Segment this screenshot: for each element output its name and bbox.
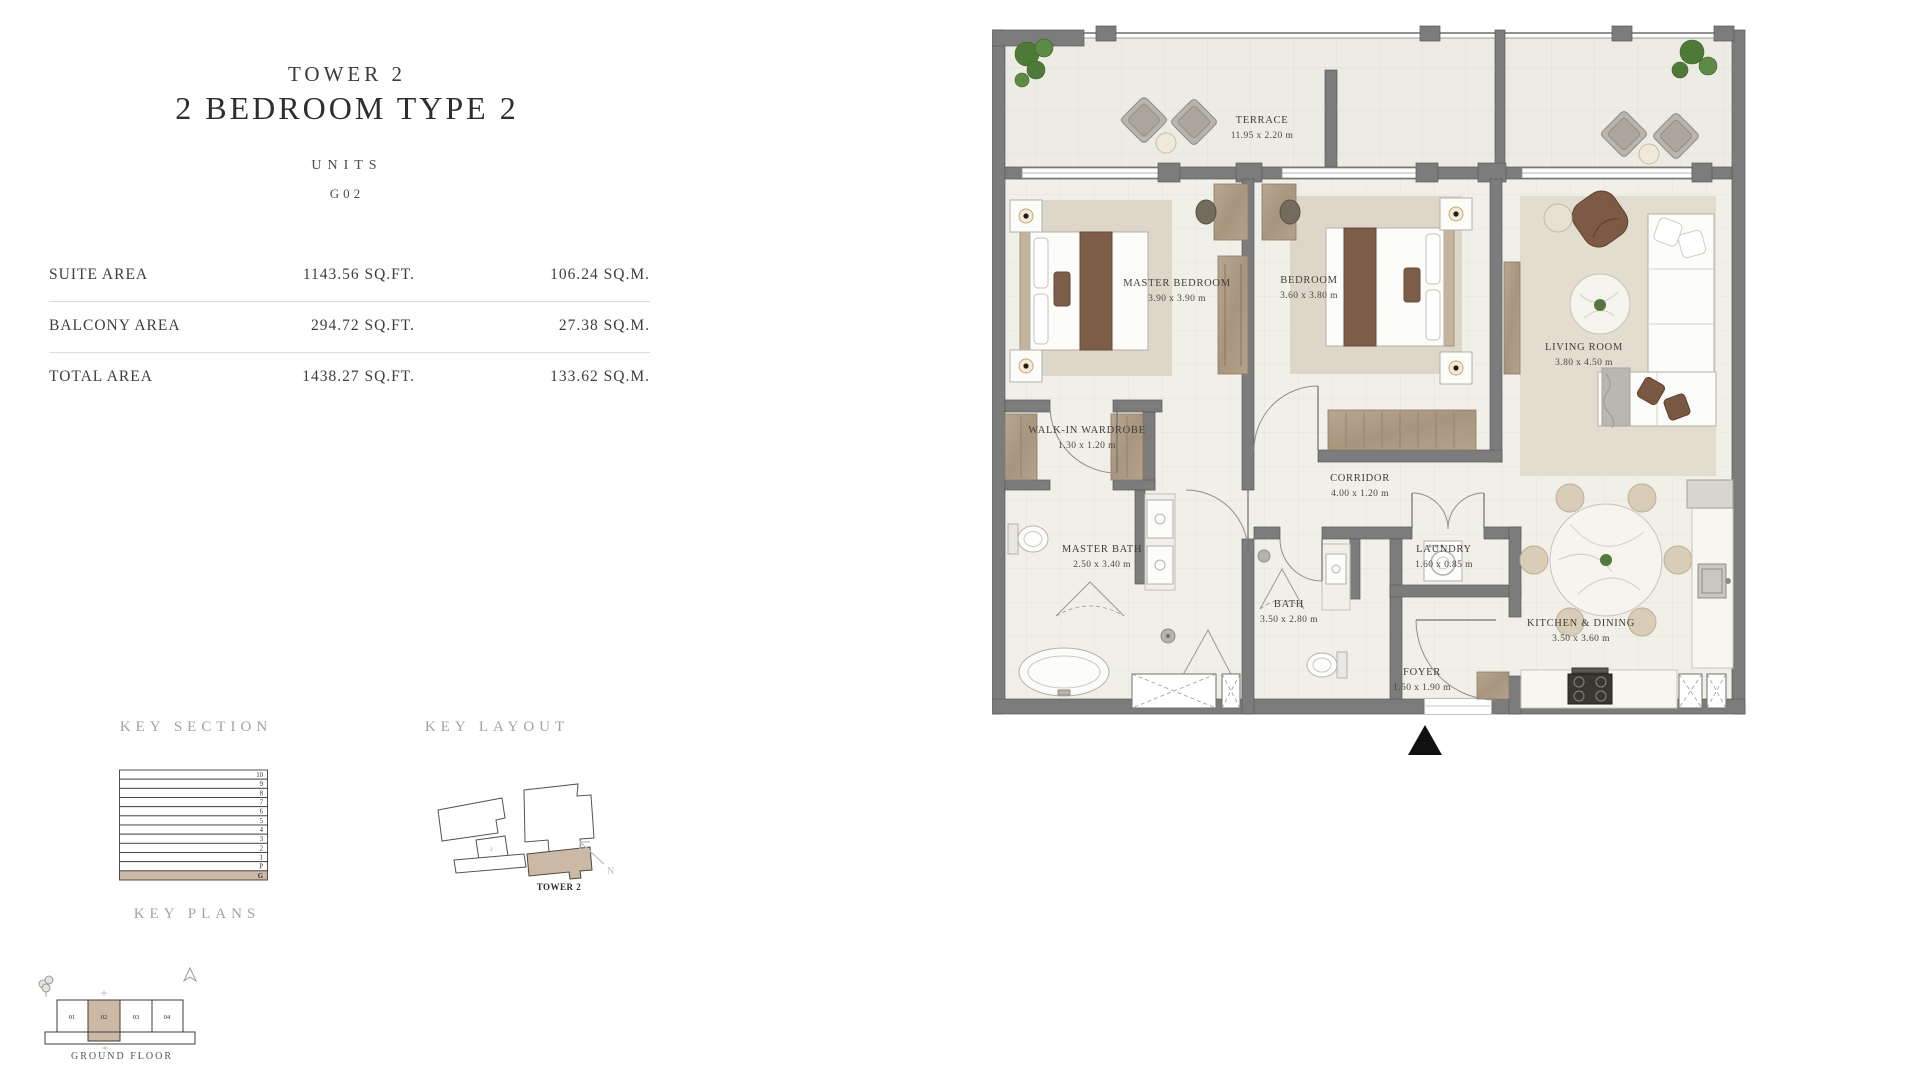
site-building-left [438, 798, 505, 841]
total-area-row: TOTAL AREA 1438.27 SQ.FT. 133.62 SQ.M. [49, 368, 650, 390]
ground-floor-diagram: 01 02 03 04 [30, 955, 230, 1051]
unit-01-label: 01 [69, 1014, 76, 1021]
key-plans-label: KEY PLANS [87, 906, 307, 923]
room-label-kitchen-dining: KITCHEN & DINING [1527, 618, 1635, 629]
key-section-label: KEY SECTION [86, 719, 306, 736]
suite-area-row: SUITE AREA 1143.56 SQ.FT. 106.24 SQ.M. [49, 266, 650, 288]
room-label-walkin-wardrobe: WALK-IN WARDROBE [1028, 425, 1145, 436]
key-section-floor-label: 2 [260, 845, 264, 852]
key-layout-label: KEY LAYOUT [387, 719, 607, 736]
ground-floor-label: GROUND FLOOR [37, 1051, 207, 1062]
total-area-label: TOTAL AREA [49, 368, 229, 390]
bath-vanity [1322, 544, 1350, 610]
total-area-sqm: 133.62 SQ.M. [415, 368, 650, 390]
balcony-area-sqm: 27.38 SQ.M. [415, 317, 650, 339]
foyer-bench [1477, 672, 1509, 699]
north-arrow-icon [184, 968, 196, 981]
room-label-laundry: LAUNDRY [1416, 544, 1472, 555]
tower-name: TOWER 2 [97, 62, 597, 87]
key-section-floor-label: 5 [260, 818, 264, 825]
site-mark-icon [102, 1046, 108, 1050]
bedroom-closet [1328, 410, 1476, 450]
key-section-floor-label: 3 [260, 836, 264, 843]
key-section-floor-label: 9 [260, 781, 264, 788]
entrance-marker-icon [1408, 725, 1442, 755]
room-label-living-room: LIVING ROOM [1545, 342, 1623, 353]
site-mark-icon [101, 990, 107, 996]
side-table [1544, 204, 1572, 232]
shaft [1132, 674, 1240, 708]
room-dims-terrace: 11.95 x 2.20 m [1231, 131, 1294, 141]
bath-toilet [1307, 652, 1347, 678]
master-wardrobe [1218, 256, 1248, 374]
room-dims-corridor: 4.00 x 1.20 m [1331, 489, 1389, 499]
room-dims-walkin-wardrobe: 1.30 x 1.20 m [1058, 441, 1116, 451]
unit-02-extension [88, 1032, 120, 1041]
key-section-diagram: 10987654321PG [119, 769, 271, 883]
bedroom-desk [1262, 184, 1300, 240]
key-section-floor-row [120, 862, 268, 871]
suite-area-label: SUITE AREA [49, 266, 229, 288]
master-bath-toilet [1008, 524, 1048, 554]
units-label: UNITS [97, 158, 597, 174]
divider [49, 352, 650, 353]
master-bed [1020, 232, 1148, 350]
kitchen-counter-bottom [1521, 668, 1677, 708]
bathtub [1019, 648, 1109, 696]
tower2-highlight [527, 847, 592, 879]
tv-cabinet [1504, 262, 1520, 374]
divider [49, 301, 650, 302]
key-section-floor-row [120, 779, 268, 788]
room-dims-foyer: 1.50 x 1.90 m [1393, 683, 1451, 693]
room-label-master-bath: MASTER BATH [1062, 544, 1142, 555]
key-section-floor-row [120, 798, 268, 807]
balcony-area-sqft: 294.72 SQ.FT. [229, 317, 415, 339]
room-label-bedroom: BEDROOM [1280, 275, 1337, 286]
suite-area-sqm: 106.24 SQ.M. [415, 266, 650, 288]
key-layout-tower-label: TOWER 2 [537, 882, 582, 892]
site-building-bar [454, 854, 526, 873]
room-label-foyer: FOYER [1403, 667, 1441, 678]
key-section-floor-label: 6 [260, 809, 264, 816]
room-dims-living-room: 3.80 x 4.50 m [1555, 358, 1613, 368]
key-section-floor-row [120, 853, 268, 862]
fridge [1687, 480, 1733, 508]
room-dims-master-bedroom: 3.90 x 3.90 m [1148, 294, 1206, 304]
room-dims-kitchen-dining: 3.50 x 3.60 m [1552, 634, 1610, 644]
key-section-floor-row [120, 843, 268, 852]
tree-icon [39, 976, 53, 997]
room-dims-bedroom: 3.60 x 3.80 m [1280, 291, 1338, 301]
key-section-floor-label: 8 [260, 790, 264, 797]
north-label: N [607, 866, 614, 877]
stove [1568, 674, 1612, 704]
key-section-floor-row [120, 770, 268, 779]
key-section-floor-label: P [259, 864, 263, 871]
key-layout-diagram: 2 TOWER 2 N [428, 776, 668, 896]
bedroom-bed [1326, 228, 1454, 346]
balcony-area-row: BALCONY AREA 294.72 SQ.FT. 27.38 SQ.M. [49, 317, 650, 339]
key-section-floor-row [120, 834, 268, 843]
floor-plan: TERRACE 11.95 x 2.20 m MASTER BEDROOM 3.… [992, 24, 1748, 764]
room-label-corridor: CORRIDOR [1330, 473, 1390, 484]
unit-02-label: 02 [101, 1014, 108, 1021]
master-bath-vanity [1145, 494, 1175, 590]
coffee-table [1570, 274, 1630, 334]
key-section-floor-label: 4 [260, 827, 264, 834]
room-label-terrace: TERRACE [1236, 115, 1289, 126]
unit-04-label: 04 [164, 1014, 171, 1021]
key-section-floor-row [120, 807, 268, 816]
key-section-floor-row [120, 825, 268, 834]
total-area-sqft: 1438.27 SQ.FT. [229, 368, 415, 390]
balcony-area-label: BALCONY AREA [49, 317, 229, 339]
room-label-master-bedroom: MASTER BEDROOM [1123, 278, 1231, 289]
key-section-floor-label: 7 [260, 799, 264, 806]
suite-area-sqft: 1143.56 SQ.FT. [229, 266, 415, 288]
entry-threshold [1424, 699, 1492, 714]
key-section-floor-row [120, 816, 268, 825]
room-label-bath: BATH [1274, 599, 1304, 610]
key-section-floor-row [120, 871, 268, 880]
page-title: 2 BEDROOM TYPE 2 [47, 90, 647, 127]
unit-03-label: 03 [133, 1014, 140, 1021]
key-section-floor-row [120, 788, 268, 797]
key-section-floor-label: G [258, 873, 264, 880]
key-section-floor-label: 10 [256, 772, 263, 779]
shaft [1679, 674, 1726, 708]
room-dims-bath: 3.50 x 2.80 m [1260, 615, 1318, 625]
unit-number: G02 [97, 186, 597, 202]
kitchen-counter-right [1687, 480, 1733, 668]
key-section-floor-label: 1 [260, 854, 263, 861]
room-dims-laundry: 1.60 x 0.85 m [1415, 560, 1473, 570]
room-dims-master-bath: 2.50 x 3.40 m [1073, 560, 1131, 570]
